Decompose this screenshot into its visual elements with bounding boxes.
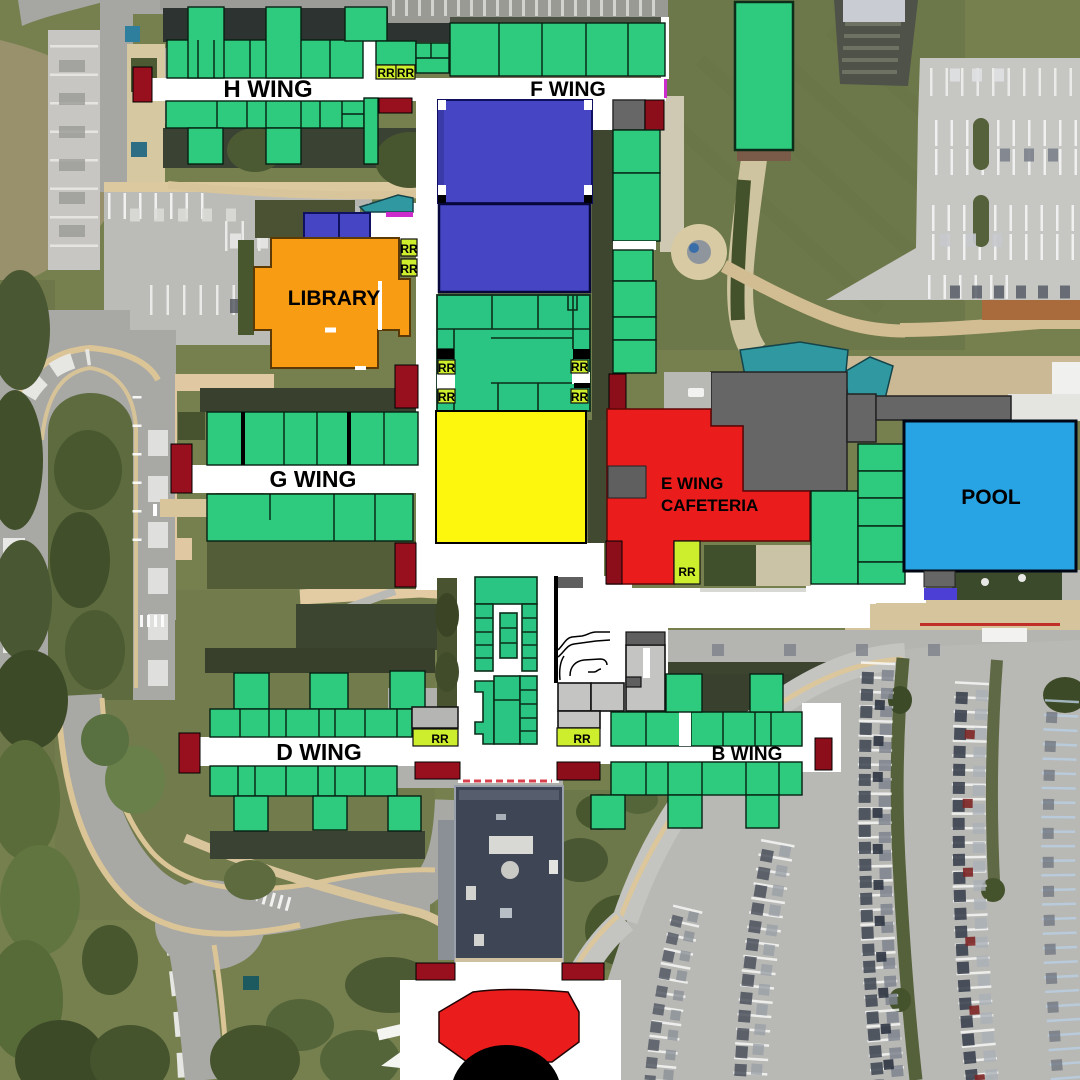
svg-text:B WING: B WING xyxy=(712,744,783,765)
svg-text:F WING: F WING xyxy=(530,78,606,101)
svg-text:E WING: E WING xyxy=(661,474,723,493)
svg-text:RR: RR xyxy=(571,390,589,404)
svg-text:D WING: D WING xyxy=(276,739,362,765)
svg-text:RR: RR xyxy=(431,732,449,746)
svg-text:H WING: H WING xyxy=(223,76,312,103)
svg-text:RR: RR xyxy=(678,565,696,579)
svg-text:RR: RR xyxy=(400,262,418,276)
svg-text:RR: RR xyxy=(438,390,456,404)
svg-text:G WING: G WING xyxy=(270,466,357,492)
svg-text:RR: RR xyxy=(377,66,395,80)
svg-text:RR: RR xyxy=(397,66,415,80)
svg-text:RR: RR xyxy=(400,242,418,256)
svg-text:RR: RR xyxy=(438,361,456,375)
svg-text:CAFETERIA: CAFETERIA xyxy=(661,496,758,515)
svg-text:RR: RR xyxy=(573,732,591,746)
svg-text:POOL: POOL xyxy=(961,486,1021,509)
svg-text:LIBRARY: LIBRARY xyxy=(288,287,381,310)
svg-text:RR: RR xyxy=(571,360,589,374)
